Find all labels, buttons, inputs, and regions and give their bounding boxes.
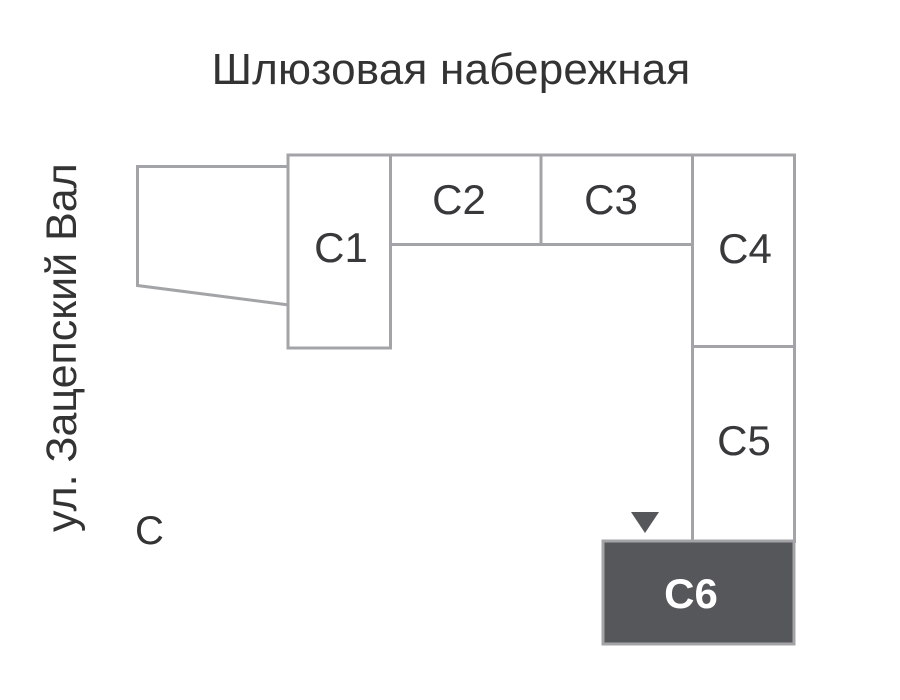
svg-text:С4: С4 (718, 225, 772, 272)
svg-text:С: С (135, 509, 164, 553)
svg-text:С1: С1 (314, 224, 368, 271)
svg-text:Шлюзовая набережная: Шлюзовая набережная (212, 45, 691, 94)
svg-text:С2: С2 (432, 176, 486, 223)
svg-text:С5: С5 (717, 417, 771, 464)
svg-text:ул. Зацепский Вал: ул. Зацепский Вал (38, 163, 86, 532)
svg-text:С6: С6 (664, 570, 718, 617)
svg-text:С3: С3 (584, 176, 638, 223)
